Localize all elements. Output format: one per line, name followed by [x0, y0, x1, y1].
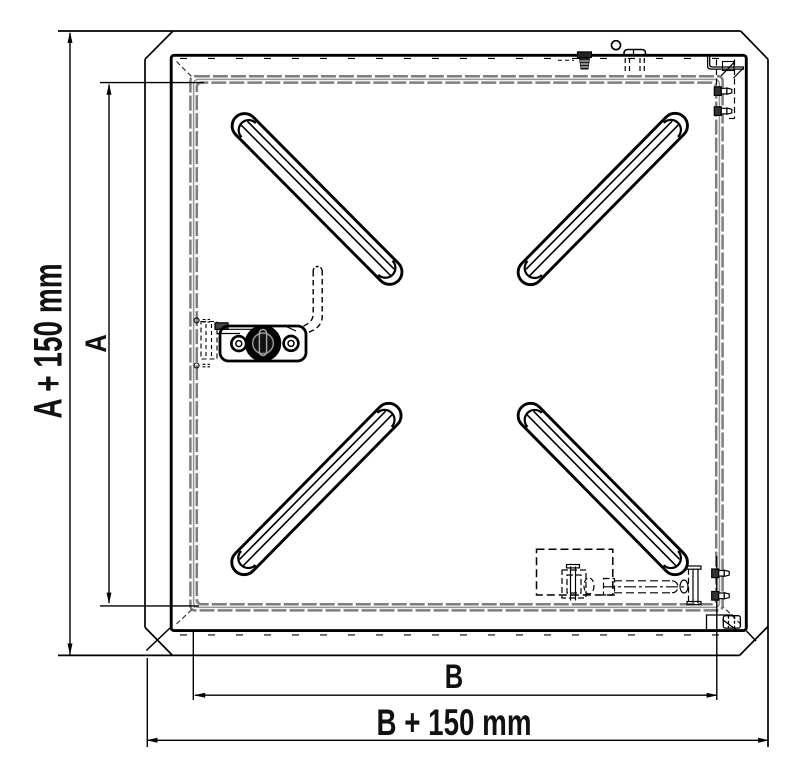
- svg-text:B + 150 mm: B + 150 mm: [377, 701, 532, 743]
- svg-text:A + 150 mm: A + 150 mm: [27, 263, 71, 418]
- svg-text:B: B: [445, 659, 463, 696]
- svg-text:A: A: [79, 334, 112, 352]
